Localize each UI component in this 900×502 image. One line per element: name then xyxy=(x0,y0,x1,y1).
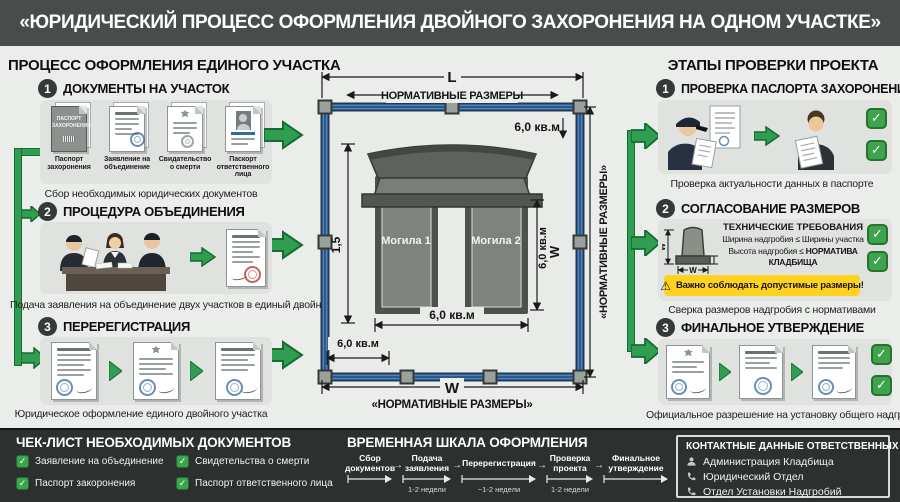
approval-document-icon xyxy=(666,345,710,399)
check-icon: ✓ xyxy=(867,251,888,272)
approval-document-icon xyxy=(739,345,783,399)
left-step3-title: ПЕРЕРЕГИСТРАЦИЯ xyxy=(63,319,190,334)
left-step1-header: 1 ДОКУМЕНТЫ НА УЧАСТОК xyxy=(38,79,229,98)
step-number-badge: 1 xyxy=(656,79,675,98)
right-step1-caption: Проверка актуальности данных в паспорте xyxy=(650,178,894,190)
page-title: «ЮРИДИЧЕСКИЙ ПРОЦЕСС ОФОРМЛЕНИЯ ДВОЙНОГО… xyxy=(19,12,880,34)
right-step2-header: 2 СОГЛАСОВАНИЕ РАЗМЕРОВ xyxy=(656,199,860,218)
left-step1-panel: ПАСПОРТ ЗАХОРОНЕНИЯ Паспорт захоронения … xyxy=(40,100,272,184)
right-step2-title: СОГЛАСОВАНИЕ РАЗМЕРОВ xyxy=(681,201,860,216)
timeline-stage: Подача заявления 1-2 недели xyxy=(402,454,452,495)
contact-label: Администрация Кладбища xyxy=(703,456,834,468)
burial-passport-document-icon: ПАСПОРТ ЗАХОРОНЕНИЯ xyxy=(51,106,87,152)
burial-passport-doc-text: ПАСПОРТ ЗАХОРОНЕНИЯ xyxy=(52,116,86,130)
right-step3-caption: Официальное разрешение на установку обще… xyxy=(646,409,898,421)
office-meeting-scene-icon xyxy=(44,227,186,291)
right-step1-panel: ✓ ✓ xyxy=(658,100,892,174)
timeline-stage-label: Перерегистрация xyxy=(462,454,536,474)
contacts-title: КОНТАКТНЫЕ ДАННЫЕ ОТВЕТСТВЕННЫХ ЛИЦ xyxy=(686,440,880,454)
timeline-span-icon xyxy=(347,474,393,484)
checklist-item: ✓ Паспорт ответственного лица xyxy=(176,477,333,490)
normative-bottom-label: «НОРМАТИВНЫЕ РАЗМЕРЫ» xyxy=(372,399,533,411)
headstone-dimensions-icon: W W xyxy=(662,222,724,278)
application-document-icon xyxy=(109,106,145,152)
technical-requirements-block: ТЕХНИЧЕСКИЕ ТРЕБОВАНИЯ Ширина надгробия … xyxy=(722,222,864,269)
right-step2-panel: W W ТЕХНИЧЕСКИЕ ТРЕБОВАНИЯ Ширина надгро… xyxy=(658,219,892,301)
tech-rule-1: Ширина надгробия ≤ Ширины участка xyxy=(722,234,864,246)
right-step2-caption: Сверка размеров надгробия с нормативами xyxy=(650,304,894,316)
left-step3-panel xyxy=(40,337,272,405)
contact-row: Отдел Установки Надгробий xyxy=(686,484,880,499)
checklist-title: ЧЕК-ЛИСТ НЕОБХОДИМЫХ ДОКУМЕНТОВ xyxy=(16,435,291,450)
clerk-reading-document-icon xyxy=(784,104,848,170)
inspector-checking-document-icon xyxy=(664,104,750,170)
timeline-stage-label: Сбор документов xyxy=(345,454,395,474)
person-icon xyxy=(686,456,697,467)
left-step2-panel xyxy=(40,222,272,294)
small-arrow-icon xyxy=(754,126,780,146)
tech-requirements-title: ТЕХНИЧЕСКИЕ ТРЕБОВАНИЯ xyxy=(722,222,864,234)
plot-diagram: Могила 1 Могила 2 L xyxy=(300,46,620,430)
infographic-root: «ЮРИДИЧЕСКИЙ ПРОЦЕСС ОФОРМЛЕНИЯ ДВОЙНОГО… xyxy=(0,0,900,502)
tech-rule-2-text: Высота надгробия ≤ xyxy=(728,246,805,256)
checklist-item-label: Заявление на объединение xyxy=(35,456,164,467)
timeline-stage-duration: 1-2 недели xyxy=(408,485,446,495)
connector-arrow-icon xyxy=(631,123,661,149)
warning-banner: ⚠ Важно соблюдать допустимые размеры! xyxy=(664,275,860,296)
step-number-badge: 2 xyxy=(656,199,675,218)
left-step1-caption: Сбор необходимых юридических документов xyxy=(20,188,282,200)
checklist-item-label: Свидетельства о смерти xyxy=(195,456,309,467)
check-icon: ✓ xyxy=(866,108,887,129)
timeline: Сбор документов → Подача заявления 1-2 н… xyxy=(347,454,669,495)
checklist-item: ✓ Заявление на объединение xyxy=(16,455,164,468)
timeline-stage-label: Проверка проекта xyxy=(546,454,594,474)
timeline-span-icon xyxy=(546,474,594,484)
timeline-span-icon xyxy=(603,474,669,484)
doc-label: Заявление на объединение xyxy=(98,156,156,171)
left-step2-caption: Подача заявления на объединение двух уча… xyxy=(10,299,330,311)
left-step1-title: ДОКУМЕНТЫ НА УЧАСТОК xyxy=(63,81,229,96)
contacts-box: КОНТАКТНЫЕ ДАННЫЕ ОТВЕТСТВЕННЫХ ЛИЦ Адми… xyxy=(676,435,890,498)
footer-bar: ЧЕК-ЛИСТ НЕОБХОДИМЫХ ДОКУМЕНТОВ ✓ Заявле… xyxy=(0,428,900,502)
arrow-right-icon: → xyxy=(452,460,461,471)
check-icon: ✓ xyxy=(867,224,888,245)
dim-L-label: L xyxy=(447,69,456,86)
timeline-span-icon xyxy=(402,474,452,484)
right-step1-header: 1 ПРОВЕРКА ПАСЛОРТА ЗАХОРОНЕНИЯ xyxy=(656,79,900,98)
right-step3-header: 3 ФИНАЛЬНОЕ УТВЕРЖДЕНИЕ xyxy=(656,318,864,337)
contact-label: Отдел Установки Надгробий xyxy=(703,486,841,498)
stamped-application-document-icon xyxy=(226,229,266,287)
arrow-right-icon: → xyxy=(594,460,603,471)
check-icon: ✓ xyxy=(176,455,189,468)
triangle-arrow-icon xyxy=(719,363,731,381)
timeline-stage-duration: 1-2 недели xyxy=(551,485,589,495)
timeline-stage: Проверка проекта 1-2 недели xyxy=(546,454,594,495)
warning-icon: ⚠ xyxy=(660,280,671,292)
dim-W-label: W xyxy=(445,380,460,397)
step-number-badge: 2 xyxy=(38,202,57,221)
timeline-title: ВРЕМЕННАЯ ШКАЛА ОФОРМЛЕНИЯ xyxy=(347,435,587,450)
area-top-label: 6,0 кв.м xyxy=(514,120,560,134)
right-column-title: ЭТАПЫ ПРОВЕРКИ ПРОЕКТА xyxy=(660,57,886,74)
connector-arrow-icon xyxy=(631,338,661,364)
step-number-badge: 1 xyxy=(38,79,57,98)
side-w-label: W xyxy=(547,245,562,258)
left-step2-header: 2 ПРОЦЕДУРА ОБЪЕДИНЕНИЯ xyxy=(38,202,245,221)
left-step2-title: ПРОЦЕДУРА ОБЪЕДИНЕНИЯ xyxy=(63,204,245,219)
phone-icon xyxy=(686,486,697,497)
registered-document-icon xyxy=(215,342,261,400)
grave2-label: Могила 2 xyxy=(471,235,521,247)
arrow-right-icon: → xyxy=(393,460,402,471)
timeline-stage-label: Финальное утверждение xyxy=(603,454,669,474)
timeline-stage: Сбор документов xyxy=(347,454,393,495)
connector-arrow-icon xyxy=(631,230,661,256)
phone-icon xyxy=(686,471,697,482)
headstone-w-vertical-label: W xyxy=(662,243,667,251)
triangle-arrow-icon xyxy=(791,363,803,381)
small-arrow-icon xyxy=(190,247,216,267)
doc-label: Свидательство о смерти xyxy=(156,156,214,171)
contact-row: Администрация Кладбища xyxy=(686,454,880,469)
step-number-badge: 3 xyxy=(38,317,57,336)
approval-document-icon xyxy=(812,345,856,399)
registered-document-icon xyxy=(133,342,179,400)
area-bottom-label: 6,0 кв.м xyxy=(429,308,475,322)
arrow-right-icon: → xyxy=(537,460,546,471)
normative-top-label: НОРМАТИВНЫЕ РАЗМЕРЫ xyxy=(381,90,524,102)
left-step3-caption: Юридическое оформление единого двойного … xyxy=(10,408,272,420)
check-icon: ✓ xyxy=(176,477,189,490)
check-icon: ✓ xyxy=(871,344,892,365)
check-icon: ✓ xyxy=(16,455,29,468)
timeline-stage-duration: ~1-2 недели xyxy=(478,485,520,495)
timeline-span-icon xyxy=(461,474,537,484)
triangle-arrow-icon xyxy=(190,361,203,381)
connector-line xyxy=(14,148,22,366)
timeline-stage: Финальное утверждение xyxy=(603,454,669,495)
grave1-label: Могила 1 xyxy=(381,235,431,247)
triangle-arrow-icon xyxy=(109,361,122,381)
tech-rule-2: Высота надгробия ≤ НОРМАТИВА КЛАДБИЩА xyxy=(722,246,864,269)
timeline-stage-label: Подача заявления xyxy=(402,454,452,474)
header-bar: «ЮРИДИЧЕСКИЙ ПРОЦЕСС ОФОРМЛЕНИЯ ДВОЙНОГО… xyxy=(0,0,900,46)
area-corner-label: 6,0 кв.м xyxy=(337,338,379,350)
normative-right-label: «НОРМАТИВНЫЕ РАЗМЕРЫ» xyxy=(598,165,610,319)
responsible-person-passport-icon xyxy=(225,106,261,152)
checklist-item-label: Паспорт ответственного лица xyxy=(195,478,333,489)
contact-label: Юридический Отдел xyxy=(703,471,803,483)
flow-arrow-icon xyxy=(264,120,304,150)
height-mark-label: 1,5 xyxy=(329,236,343,253)
doc-label: Паскорт ответственного лица xyxy=(214,156,272,179)
death-certificate-document-icon xyxy=(167,106,203,152)
checklist-item: ✓ Свидетельства о смерти xyxy=(176,455,309,468)
check-icon: ✓ xyxy=(866,140,887,161)
checklist-item-label: Паспорт закоронения xyxy=(35,478,135,489)
right-step3-panel xyxy=(658,339,892,405)
right-step3-title: ФИНАЛЬНОЕ УТВЕРЖДЕНИЕ xyxy=(681,320,864,335)
timeline-stage: Перерегистрация ~1-2 недели xyxy=(461,454,537,495)
doc-label: Паспорт захоронения xyxy=(40,156,98,171)
check-icon: ✓ xyxy=(871,375,892,396)
registered-document-icon xyxy=(51,342,97,400)
left-step3-header: 3 ПЕРЕРЕГИСТРАЦИЯ xyxy=(38,317,190,336)
left-column-title: ПРОЦЕСС ОФОРМЛЕНИЯ ЕДИНОГО УЧАСТКА xyxy=(8,57,292,74)
check-icon: ✓ xyxy=(16,477,29,490)
checklist-item: ✓ Паспорт закоронения xyxy=(16,477,135,490)
warning-text: Важно соблюдать допустимые размеры! xyxy=(676,280,864,291)
step-number-badge: 3 xyxy=(656,318,675,337)
headstone-monument xyxy=(362,145,542,207)
contact-row: Юридический Отдел xyxy=(686,469,880,484)
right-step1-title: ПРОВЕРКА ПАСЛОРТА ЗАХОРОНЕНИЯ xyxy=(681,82,900,96)
headstone-w-horizontal-label: W xyxy=(689,266,697,275)
